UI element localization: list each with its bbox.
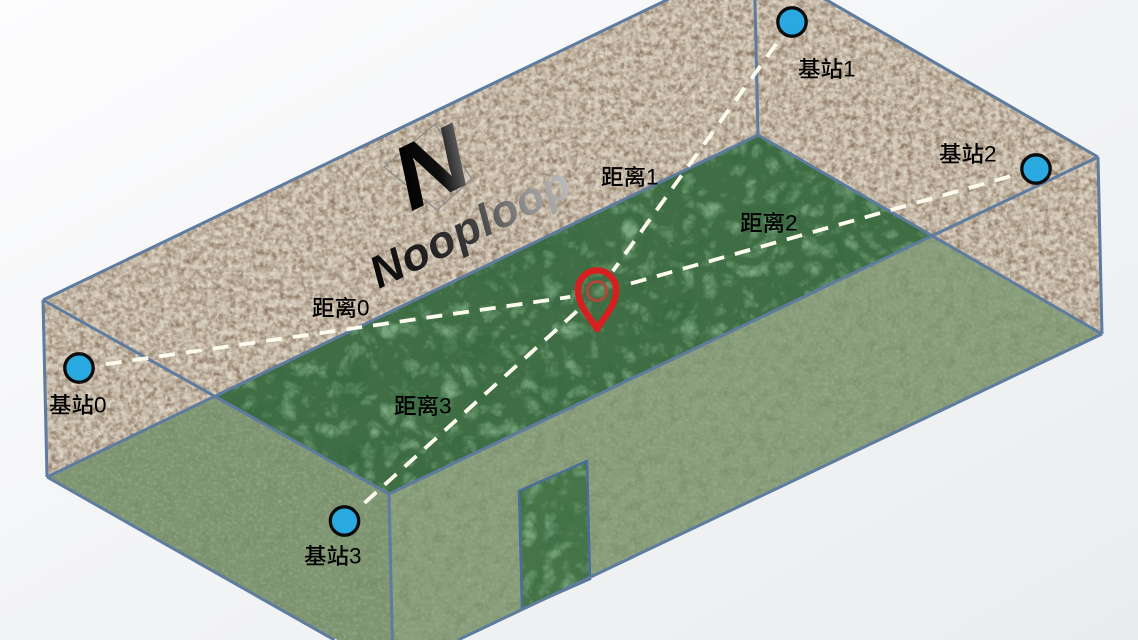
svg-text:1: 1 [646, 165, 659, 190]
svg-text:3: 3 [439, 394, 452, 419]
svg-text:2: 2 [984, 142, 997, 167]
svg-text:0: 0 [357, 296, 370, 321]
svg-text:2: 2 [785, 211, 798, 236]
svg-text:1: 1 [843, 57, 856, 82]
svg-text:0: 0 [94, 393, 107, 418]
svg-text:3: 3 [349, 544, 362, 569]
